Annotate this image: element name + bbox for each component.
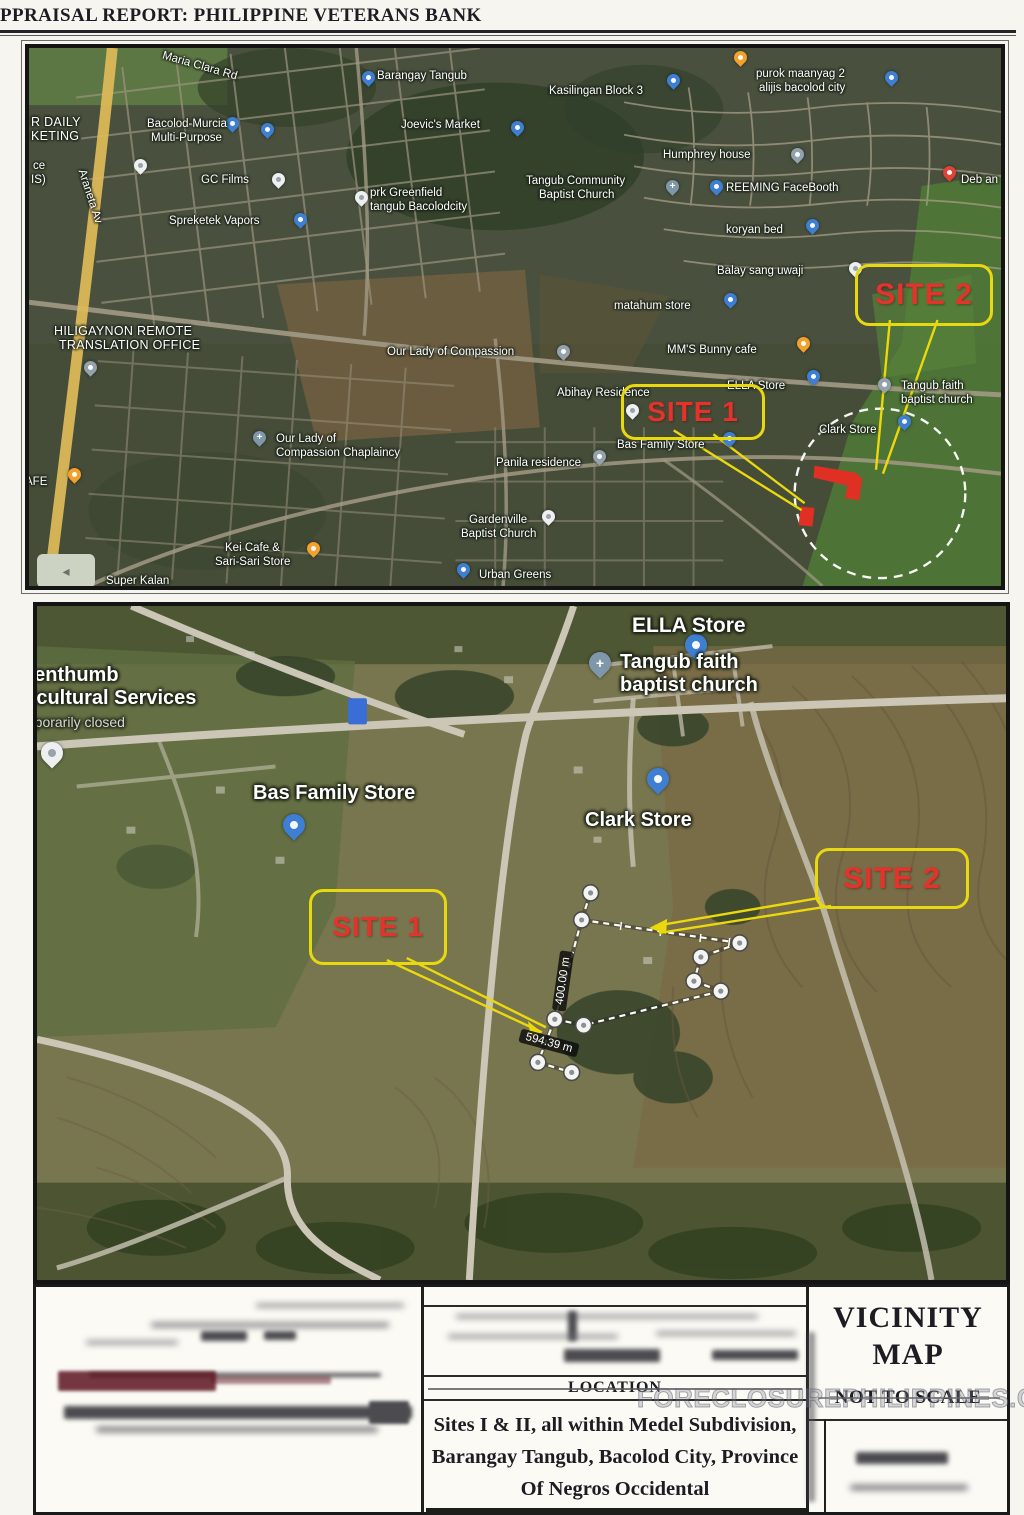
map-pin-church-icon: + xyxy=(250,428,268,446)
cross-icon: + xyxy=(253,431,266,444)
map-label: baptist church xyxy=(901,394,973,407)
map-label: matahum store xyxy=(614,300,691,313)
map-label: REEMING FaceBooth xyxy=(726,182,838,195)
map-label: Super Kalan xyxy=(106,575,169,588)
map-label: GC Films xyxy=(201,174,249,187)
map-label: Joevic's Market xyxy=(401,119,480,132)
map-label: Panila residence xyxy=(496,457,581,470)
vicinity-map-title: VICINITY MAP xyxy=(809,1299,1007,1373)
site2-red-parcel-shape xyxy=(814,466,863,500)
map-pin-church-icon: + xyxy=(663,177,681,195)
map-label: HILIGAYNON REMOTE xyxy=(54,325,192,338)
site1-callout: SITE 1 xyxy=(621,384,765,440)
site1-callout: SITE 1 xyxy=(309,889,447,965)
map-label: tangub Bacolodcity xyxy=(370,201,467,214)
map-label: Tangub faith xyxy=(901,380,964,393)
map-label: Kei Cafe & xyxy=(225,542,280,555)
scan-smudge xyxy=(808,1332,815,1502)
callout-leader-lines xyxy=(387,898,831,1032)
map-label: Baptist Church xyxy=(539,189,614,202)
map-label: Humphrey house xyxy=(663,149,751,162)
vicinity-map-overview: + + ◂ Maria Clara Rd Araneta Av R DAILY … xyxy=(25,44,1005,590)
map-label: Urban Greens xyxy=(479,569,551,582)
map-label: ELLA Store xyxy=(632,614,746,637)
site1-label: SITE 1 xyxy=(332,911,424,943)
watermark: FORECLOSUREPHILIPPINES.COM xyxy=(637,1383,1024,1414)
cross-icon: + xyxy=(589,652,611,674)
map-label: Baptist Church xyxy=(461,528,536,541)
location-value: Sites I & II, all within Medel Subdivisi… xyxy=(428,1409,802,1505)
map-label: Bacolod-Murcia xyxy=(147,118,227,131)
map-label: Clark Store xyxy=(819,424,877,437)
map-label: Bas Family Store xyxy=(253,782,415,805)
map-label: Tangub Community xyxy=(526,175,625,188)
map-label: Multi-Purpose xyxy=(151,132,222,145)
map-label: Deb an xyxy=(961,174,998,187)
header-rule xyxy=(0,30,1016,33)
map-label: Our Lady of xyxy=(276,433,336,446)
site2-label: SITE 2 xyxy=(843,862,941,896)
page-title: PPRAISAL REPORT: PHILIPPINE VETERANS BAN… xyxy=(0,5,482,27)
map-label: Compassion Chaplaincy xyxy=(276,447,400,460)
map-label: baptist church xyxy=(620,674,758,697)
redacted-scale-line xyxy=(850,1485,968,1490)
bottom-bar xyxy=(426,1508,808,1515)
map-label: Clark Store xyxy=(585,809,692,832)
map-label: Bas Family Store xyxy=(617,439,705,452)
site2-callout: SITE 2 xyxy=(815,848,969,909)
map-label: TRANSLATION OFFICE xyxy=(59,339,200,352)
map-label: Spreketek Vapors xyxy=(169,215,260,228)
map-label: R DAILY xyxy=(31,116,81,129)
site2-label: SITE 2 xyxy=(875,278,973,312)
map-label: ricultural Services xyxy=(33,687,196,710)
map-label: IS) xyxy=(31,174,46,187)
cross-icon: + xyxy=(666,180,679,193)
redacted-scale-value xyxy=(856,1452,948,1464)
map-label: Gardenville xyxy=(469,514,527,527)
map-label: koryan bed xyxy=(726,224,783,237)
map-label: AFE xyxy=(25,476,47,489)
map-label: Barangay Tangub xyxy=(377,70,467,83)
vicinity-map-detail: + ELLA Store eenthumb ricultural Service… xyxy=(33,602,1010,1284)
map-label: Kasilingan Block 3 xyxy=(549,85,643,98)
map-label: prk Greenfield xyxy=(370,187,442,200)
header-rule-thin xyxy=(0,35,1016,36)
map-label: alijis bacolod city xyxy=(759,82,845,95)
scale-cell-border xyxy=(824,1419,826,1512)
site2-callout: SITE 2 xyxy=(855,264,993,326)
map-label: purok maanyag 2 xyxy=(756,68,845,81)
map-label: mporarily closed xyxy=(33,711,125,734)
map-label: Sari-Sari Store xyxy=(215,556,290,569)
map-label: eenthumb xyxy=(33,664,119,687)
map-pin-church-icon: + xyxy=(584,647,615,678)
map-back-chip: ◂ xyxy=(37,554,95,588)
site1-label: SITE 1 xyxy=(647,396,739,428)
map-label: MM'S Bunny cafe xyxy=(667,344,757,357)
map-label: Our Lady of Compassion xyxy=(387,346,514,359)
map-label: ce xyxy=(33,160,45,173)
map-label: KETING xyxy=(31,130,79,143)
map-label: Tangub faith xyxy=(620,651,739,674)
map-label: Balay sang uwaji xyxy=(717,265,803,278)
